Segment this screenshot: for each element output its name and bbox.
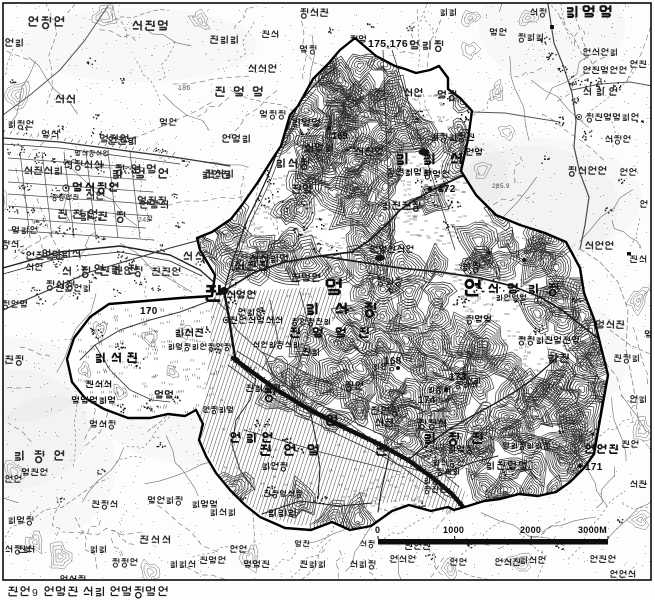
svg-text:174: 174 — [418, 395, 436, 406]
svg-text:175,176: 175,176 — [368, 38, 408, 50]
svg-text:2000: 2000 — [520, 525, 541, 535]
svg-text:171: 171 — [585, 462, 603, 473]
svg-text:170: 170 — [140, 306, 158, 317]
svg-text:1000: 1000 — [443, 525, 464, 535]
svg-text:285.9: 285.9 — [492, 183, 510, 190]
svg-text:168: 168 — [384, 356, 402, 367]
svg-text:186: 186 — [178, 85, 191, 92]
svg-text:3000M: 3000M — [578, 525, 607, 535]
svg-text:9: 9 — [32, 587, 38, 599]
svg-text:242: 242 — [138, 217, 151, 224]
svg-text:173: 173 — [449, 372, 467, 383]
svg-text:169: 169 — [332, 131, 348, 141]
svg-text:0: 0 — [375, 525, 380, 535]
svg-text:172: 172 — [438, 184, 456, 195]
